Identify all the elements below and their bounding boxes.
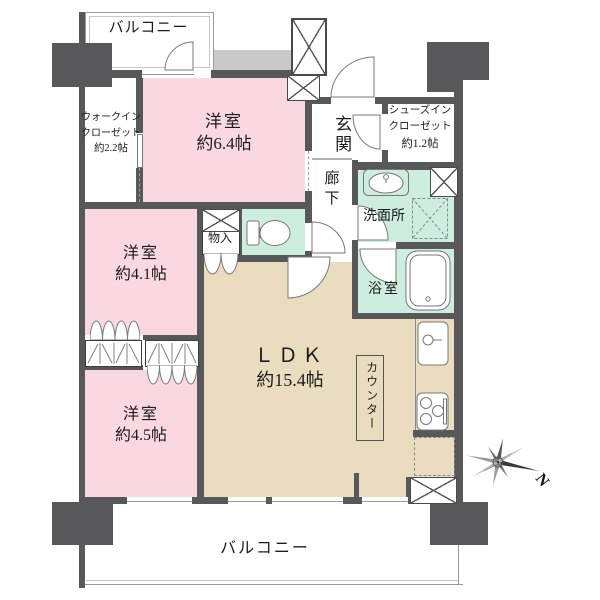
- pillar-bottom-right: [430, 502, 488, 545]
- door-gap-front: [331, 97, 375, 104]
- washing-machine-space-icon: [412, 198, 448, 239]
- window-ldk-balcony-1: [228, 497, 343, 504]
- door-gap-bathroom: [358, 242, 396, 249]
- balcony-top-label: バルコニー: [85, 19, 212, 39]
- closet-bed41: [85, 340, 142, 367]
- hallway-label: 廊下: [320, 166, 340, 214]
- closet-hatch-icon: [86, 341, 141, 366]
- door-gap-toilet: [305, 223, 312, 251]
- door-toilet-icon: [312, 222, 345, 253]
- door-bathroom-icon: [360, 249, 396, 283]
- balcony-bottom-rail-outer: [82, 584, 463, 585]
- counter-label: カウンター: [363, 361, 379, 431]
- stove-icon: [416, 392, 449, 431]
- bedroom41-label: 洋室 約4.1帖: [82, 244, 200, 286]
- bathroom-label: 浴室: [360, 281, 408, 299]
- bedroom64-area: 約6.4帖: [154, 133, 294, 155]
- ldk-area: 約15.4帖: [224, 369, 356, 392]
- bedroom41-name: 洋室: [82, 244, 200, 265]
- window-ldk-balcony-2: [362, 497, 408, 504]
- bedroom41-area: 約4.1帖: [82, 265, 200, 286]
- closet-bed41-bifold-icon: [90, 320, 140, 340]
- sic-label: シューズイン クローゼット 約1.2帖: [388, 103, 452, 153]
- floor-plan: カウンター N バルコニー 洋室 約6.4帖 ウォークイン クローゼット 約2.…: [0, 0, 600, 600]
- wall-kitchen-stub: [413, 430, 454, 437]
- closet-hatch-icon: [146, 341, 198, 366]
- ldk-name: ＬＤＫ: [224, 343, 356, 369]
- sic-line1: シューズイン: [388, 103, 452, 119]
- common-corridor-strip: [213, 50, 291, 70]
- entrance-label: 玄関: [330, 107, 352, 163]
- window-bed45-balcony: [127, 497, 192, 504]
- door-gap-balcony-top: [194, 70, 211, 78]
- closet-bed45-bifold-icon: [147, 365, 197, 385]
- window-bed64-top: [142, 70, 194, 78]
- bedroom64-name: 洋室: [154, 111, 294, 133]
- storage-shelf-icon: [202, 209, 240, 232]
- door-balcony-bed64-icon: [165, 42, 193, 70]
- bedroom45-area: 約4.5帖: [82, 426, 200, 447]
- counter-box: カウンター: [356, 355, 384, 441]
- window-mullion: [266, 497, 272, 504]
- storage-bifold-icon: [204, 253, 238, 275]
- bathtub-icon: [405, 250, 451, 311]
- washbasin-icon: [363, 169, 409, 197]
- sic-line2: クローゼット: [388, 119, 452, 135]
- wall-ldk-balcony-stub: [354, 473, 359, 499]
- pillar-top-left: [52, 43, 112, 87]
- ldk-label: ＬＤＫ 約15.4帖: [224, 343, 356, 392]
- bedroom64-label: 洋室 約6.4帖: [154, 111, 294, 155]
- kitchen-sink-icon: [417, 321, 449, 366]
- wic-label: ウォークイン クローゼット 約2.2帖: [81, 110, 141, 157]
- closet-bed45: [145, 340, 199, 367]
- balcony-bottom-rail-right: [458, 545, 459, 585]
- door-front-icon: [331, 57, 374, 97]
- bedroom45-label: 洋室 約4.5帖: [82, 405, 200, 447]
- wall-bathroom-kitchen: [352, 313, 463, 319]
- pipe-shaft-icon: [291, 18, 327, 76]
- pipe-space-washroom-icon: [430, 167, 458, 197]
- balcony-bottom-label: バルコニー: [200, 539, 330, 560]
- toilet-icon: [246, 217, 292, 249]
- door-entrance-sic-icon: [353, 115, 380, 149]
- bedroom45-name: 洋室: [82, 405, 200, 426]
- sic-line3: 約1.2帖: [388, 136, 452, 154]
- wic-line3: 約2.2帖: [81, 141, 141, 157]
- wall-mid-horizontal: [82, 202, 312, 209]
- wic-line1: ウォークイン: [81, 110, 141, 126]
- storage-label: 物入: [203, 231, 237, 247]
- pillar-top-right-b: [427, 42, 462, 92]
- refrigerator-space: [414, 437, 455, 476]
- compass-icon: N: [450, 424, 555, 498]
- balcony-bottom-rail-inner: [86, 580, 459, 581]
- wic-track-dotted: [139, 168, 140, 202]
- sliding-track-bed64: [308, 151, 309, 191]
- compass-north-label: N: [532, 470, 553, 490]
- door-corridor-ldk-icon: [288, 257, 330, 298]
- wic-line2: クローゼット: [81, 126, 141, 142]
- wall-toilet-right-top: [305, 209, 312, 223]
- washroom-label: 洗面所: [354, 208, 414, 226]
- pillar-bottom-left: [52, 502, 113, 545]
- meter-box-icon: [287, 75, 320, 101]
